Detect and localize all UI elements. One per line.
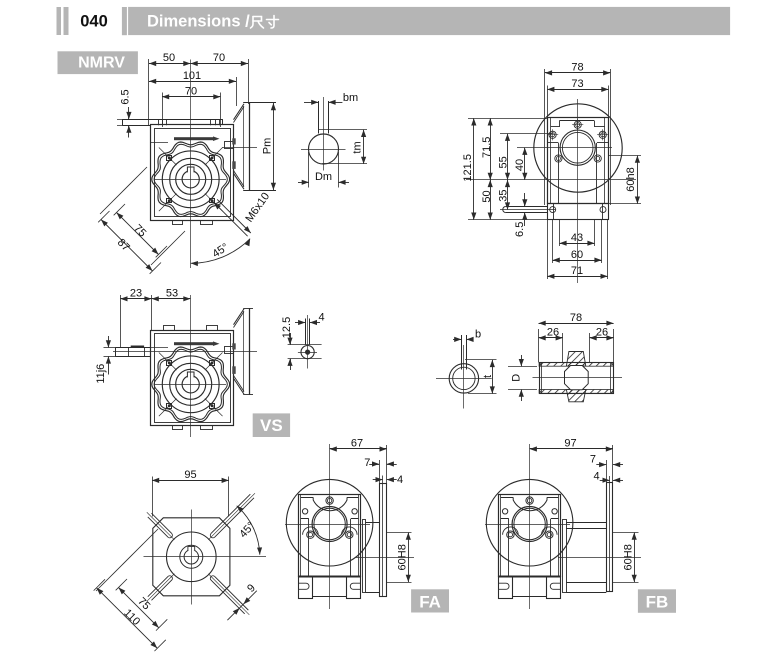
- svg-text:55: 55: [498, 156, 510, 168]
- svg-text:M6x10: M6x10: [243, 191, 272, 225]
- svg-text:95: 95: [184, 469, 196, 481]
- svg-text:78: 78: [570, 312, 582, 324]
- svg-text:40: 40: [514, 159, 526, 171]
- svg-text:121.5: 121.5: [462, 154, 474, 182]
- svg-text:12.5: 12.5: [281, 317, 293, 338]
- svg-text:4: 4: [318, 312, 324, 324]
- svg-text:b: b: [475, 329, 481, 341]
- svg-text:35: 35: [498, 189, 510, 201]
- svg-text:6.5: 6.5: [514, 222, 526, 237]
- svg-text:bm: bm: [343, 92, 358, 104]
- svg-text:4: 4: [593, 471, 599, 483]
- svg-text:71.5: 71.5: [481, 137, 493, 158]
- svg-text:70: 70: [213, 52, 225, 64]
- svg-text:Pm: Pm: [262, 138, 274, 155]
- svg-text:50: 50: [163, 52, 175, 64]
- svg-text:FA: FA: [419, 592, 441, 611]
- svg-text:26: 26: [547, 327, 559, 339]
- svg-text:23: 23: [130, 288, 142, 300]
- svg-text:87: 87: [115, 237, 132, 254]
- svg-text:50: 50: [481, 190, 493, 202]
- svg-text:11j6: 11j6: [95, 364, 107, 384]
- svg-text:Dimensions /: Dimensions /: [147, 13, 250, 31]
- svg-text:110: 110: [121, 607, 142, 628]
- svg-text:FB: FB: [646, 592, 669, 611]
- svg-text:4: 4: [397, 474, 403, 486]
- svg-text:D: D: [510, 374, 522, 382]
- svg-text:45°: 45°: [210, 241, 230, 260]
- svg-text:75: 75: [135, 595, 152, 612]
- svg-text:tm: tm: [352, 141, 364, 153]
- svg-text:26: 26: [596, 327, 608, 339]
- svg-text:60: 60: [571, 249, 583, 261]
- svg-text:101: 101: [183, 70, 201, 82]
- svg-text:NMRV: NMRV: [78, 55, 125, 72]
- svg-text:78: 78: [571, 62, 583, 74]
- svg-text:70: 70: [185, 86, 197, 98]
- svg-text:97: 97: [564, 438, 576, 450]
- svg-text:43: 43: [571, 232, 583, 244]
- svg-text:7: 7: [590, 454, 596, 466]
- svg-text:53: 53: [166, 288, 178, 300]
- svg-text:040: 040: [80, 13, 108, 31]
- svg-text:t: t: [482, 375, 494, 378]
- svg-text:Dm: Dm: [315, 171, 332, 183]
- svg-text:9: 9: [245, 582, 258, 595]
- svg-text:73: 73: [571, 78, 583, 90]
- svg-text:VS: VS: [260, 416, 283, 435]
- svg-text:75: 75: [131, 222, 148, 239]
- svg-text:67: 67: [351, 438, 363, 450]
- svg-text:6.5: 6.5: [120, 89, 132, 104]
- svg-text:71: 71: [571, 265, 583, 277]
- svg-text:7: 7: [364, 457, 370, 469]
- svg-text:60h8: 60h8: [625, 167, 637, 191]
- svg-text:45°: 45°: [237, 520, 257, 540]
